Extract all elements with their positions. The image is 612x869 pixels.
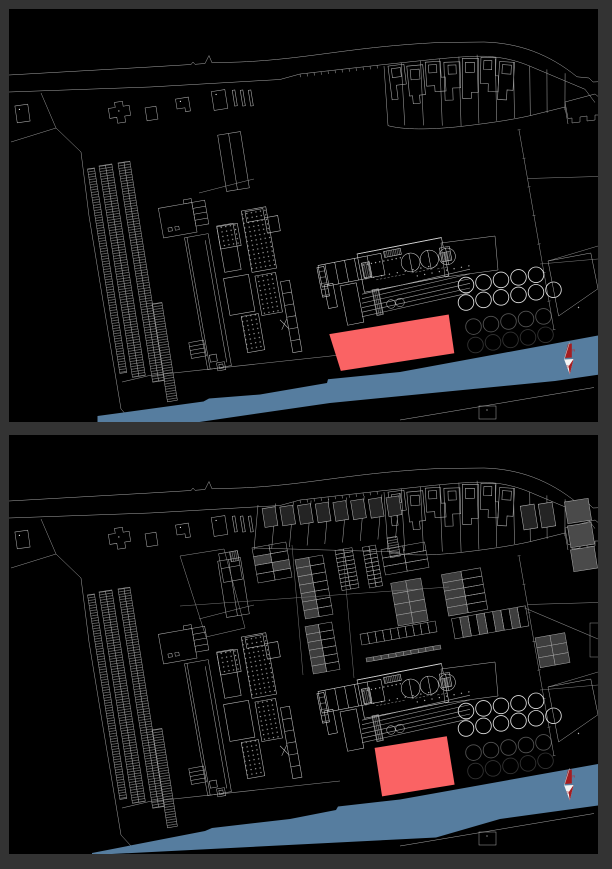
svg-text:S: S [566,790,569,795]
svg-text:N: N [572,348,575,353]
svg-text:S: S [566,364,569,369]
svg-text:N: N [572,774,575,779]
